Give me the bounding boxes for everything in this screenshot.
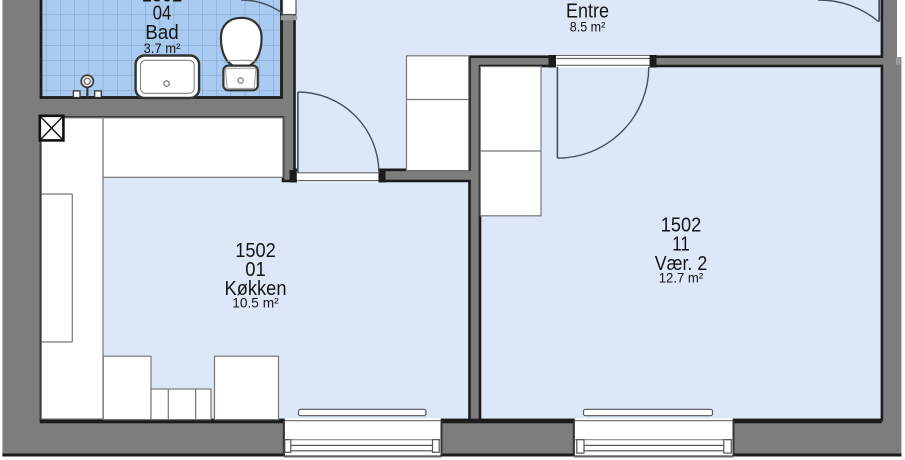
svg-text:10.5 m²: 10.5 m² (232, 296, 279, 311)
svg-text:12.7 m²: 12.7 m² (659, 271, 704, 286)
svg-text:8.5 m²: 8.5 m² (570, 20, 606, 35)
svg-text:3.7 m²: 3.7 m² (144, 41, 181, 56)
